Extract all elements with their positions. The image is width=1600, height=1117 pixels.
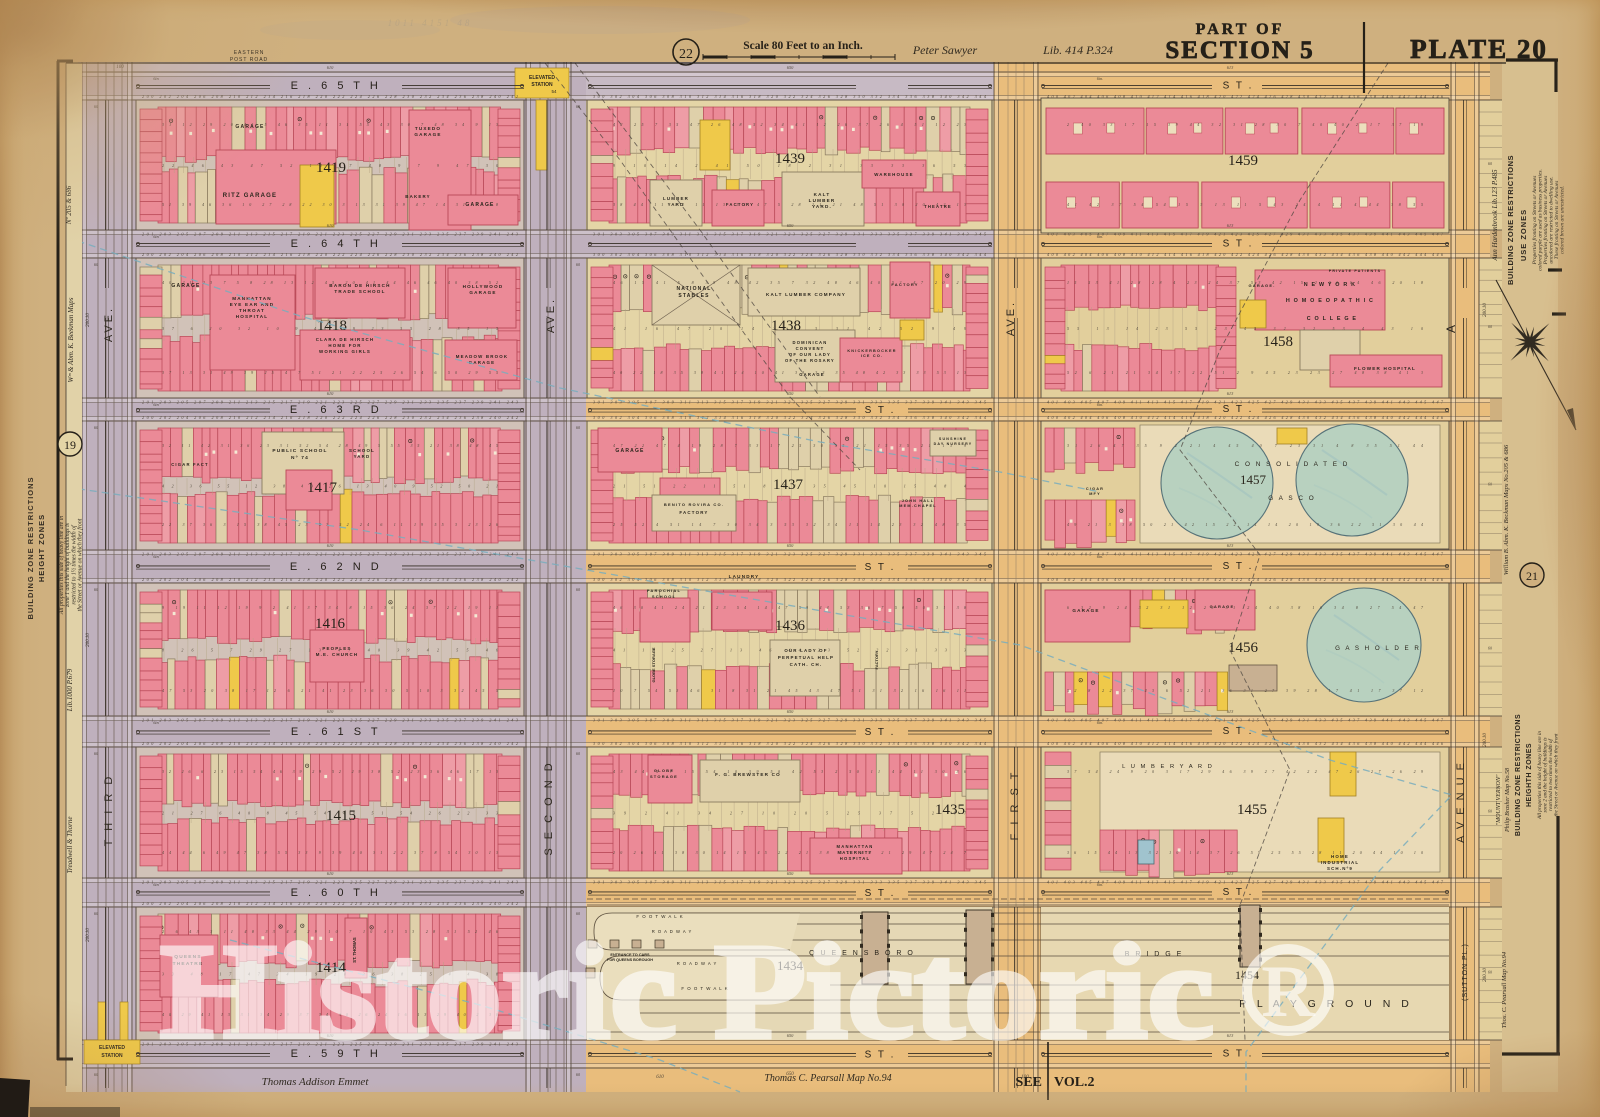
svg-text:R: R — [1261, 951, 1316, 1033]
svg-text:Historic Pictoric: Historic Pictoric — [160, 917, 1214, 1067]
